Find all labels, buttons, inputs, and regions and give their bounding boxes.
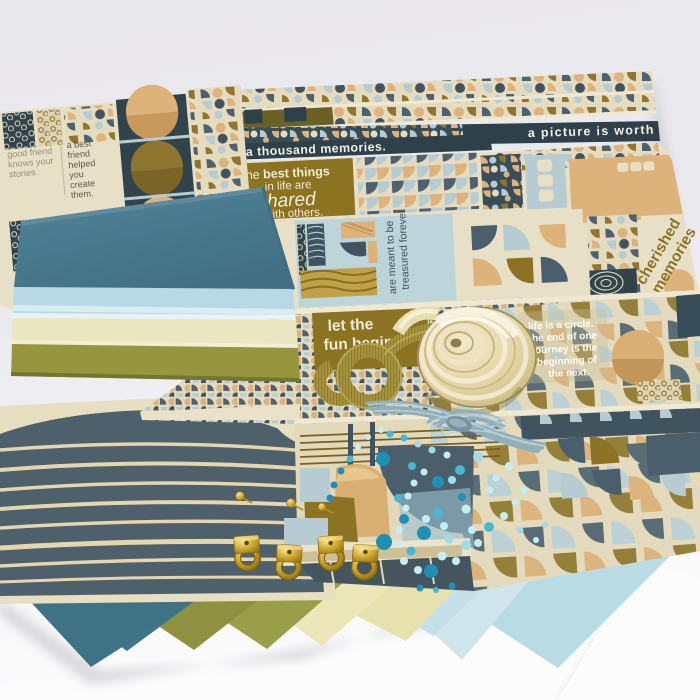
- svg-text:them.: them.: [71, 188, 94, 200]
- svg-text:let the: let the: [327, 316, 374, 335]
- svg-text:the next.: the next.: [548, 367, 590, 380]
